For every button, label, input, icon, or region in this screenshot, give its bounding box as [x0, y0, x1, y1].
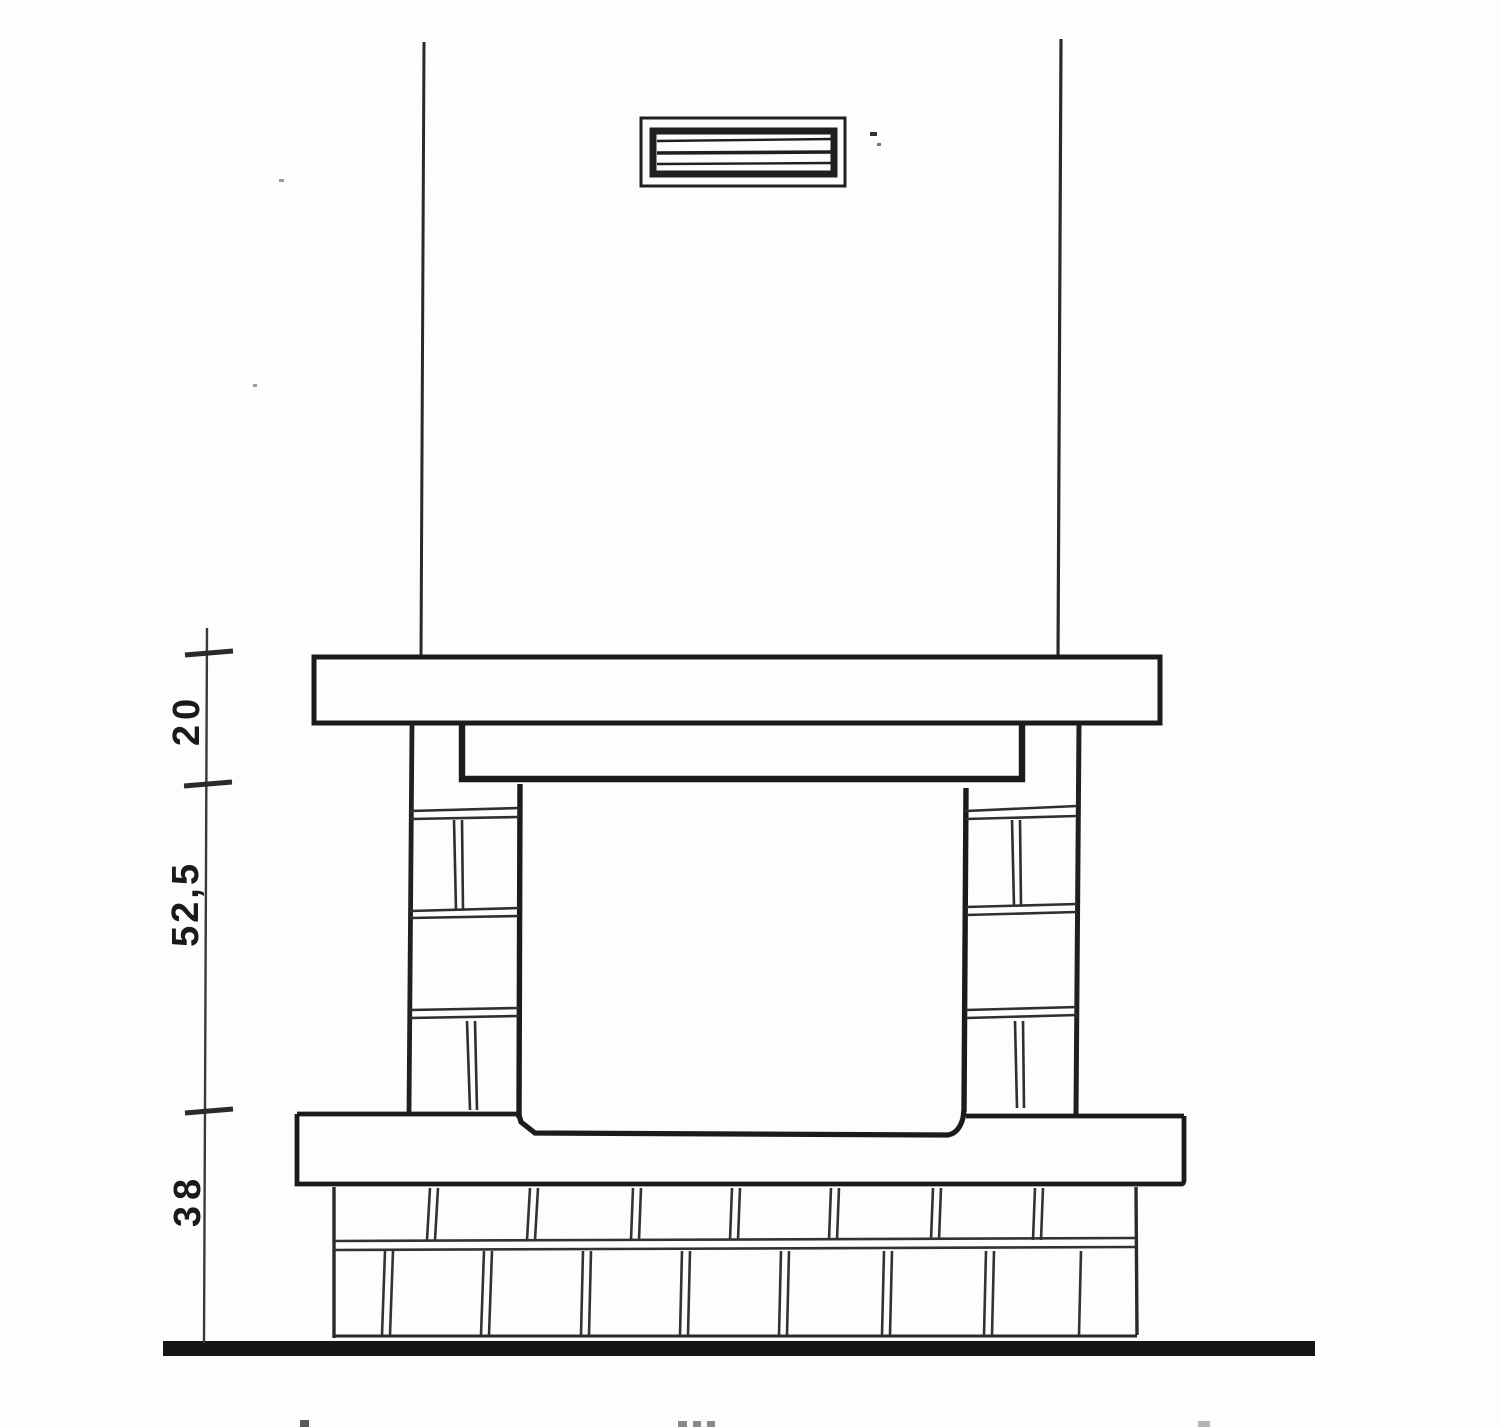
svg-text:38: 38 [167, 1173, 209, 1227]
svg-text:52,5: 52,5 [165, 861, 207, 947]
svg-text:20: 20 [166, 694, 208, 746]
